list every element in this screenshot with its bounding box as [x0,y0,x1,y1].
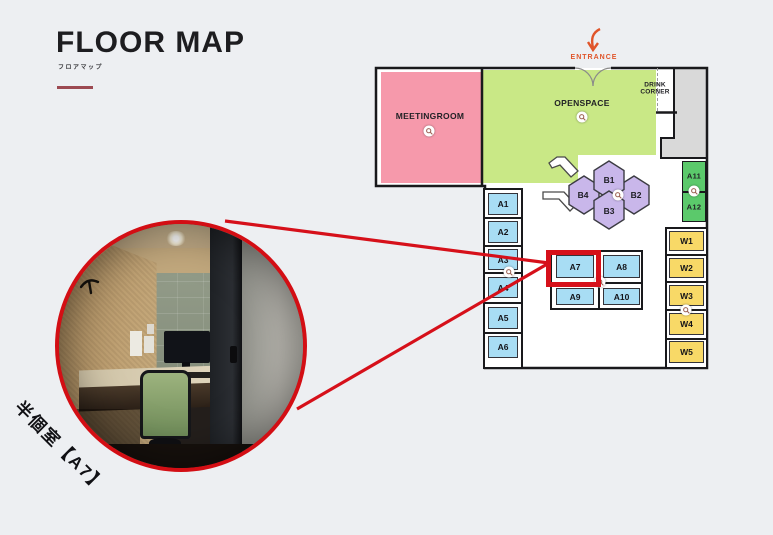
a-column-divider-4 [484,302,522,304]
booth-cell-w4[interactable]: W4 [669,313,704,335]
hex-label-b1: B1 [604,175,615,185]
entrance-label: ENTRANCE [571,54,618,61]
openspace-label: OPENSPACE [554,98,609,108]
hex-label-b2: B2 [631,190,642,200]
booth-cell-a5[interactable]: A5 [488,307,518,329]
booth-cell-a11[interactable]: A11 [687,172,701,181]
booth-cell-a1[interactable]: A1 [488,193,518,215]
booth-cell-w3[interactable]: W3 [669,285,704,306]
zoom-icon-hex-booths[interactable] [613,190,624,201]
floor-map-page: { "header": { "title": "FLOOR MAP", "sub… [0,0,773,535]
entrance-arrow-icon [585,27,607,55]
a-column-divider-5 [484,332,522,334]
meetingroom-label: MEETINGROOM [396,111,464,121]
zoom-icon-w-column[interactable] [681,305,692,316]
zoom-icon-green-pair[interactable] [689,186,700,197]
w-column-divider-4 [666,338,707,340]
booth-cell-a9[interactable]: A9 [556,288,594,305]
booth-cell-a4[interactable]: A4 [488,277,518,298]
highlight-box-a7[interactable] [546,250,601,287]
booth-cell-a8[interactable]: A8 [603,255,640,278]
booth-cell-a3[interactable]: A3 [488,249,518,270]
hex-label-b4: B4 [578,190,589,200]
a-column-divider-1 [484,217,522,219]
photo-vignette [59,224,303,468]
zoom-icon-meetingroom[interactable] [424,126,435,137]
zoom-icon-openspace[interactable] [577,112,588,123]
booth-cell-a12[interactable]: A12 [687,203,702,212]
hex-label-b3: B3 [604,206,615,216]
booth-cell-a2[interactable]: A2 [488,221,518,243]
zoom-icon-a-column[interactable] [504,267,515,278]
room-photo-a7 [55,220,307,472]
booth-cell-w1[interactable]: W1 [669,231,704,251]
drink-corner-line1: DRINK [640,82,669,89]
booth-cell-w5[interactable]: W5 [669,341,704,363]
w-column-divider-1 [666,254,707,256]
drink-corner-line2: CORNER [640,89,669,96]
a-column-divider-2 [484,245,522,247]
booth-cell-a6[interactable]: A6 [488,336,518,358]
booth-cell-a10[interactable]: A10 [603,288,640,305]
w-column-divider-2 [666,281,707,283]
booth-cell-w2[interactable]: W2 [669,258,704,278]
drink-corner-label: DRINK CORNER [640,82,669,97]
